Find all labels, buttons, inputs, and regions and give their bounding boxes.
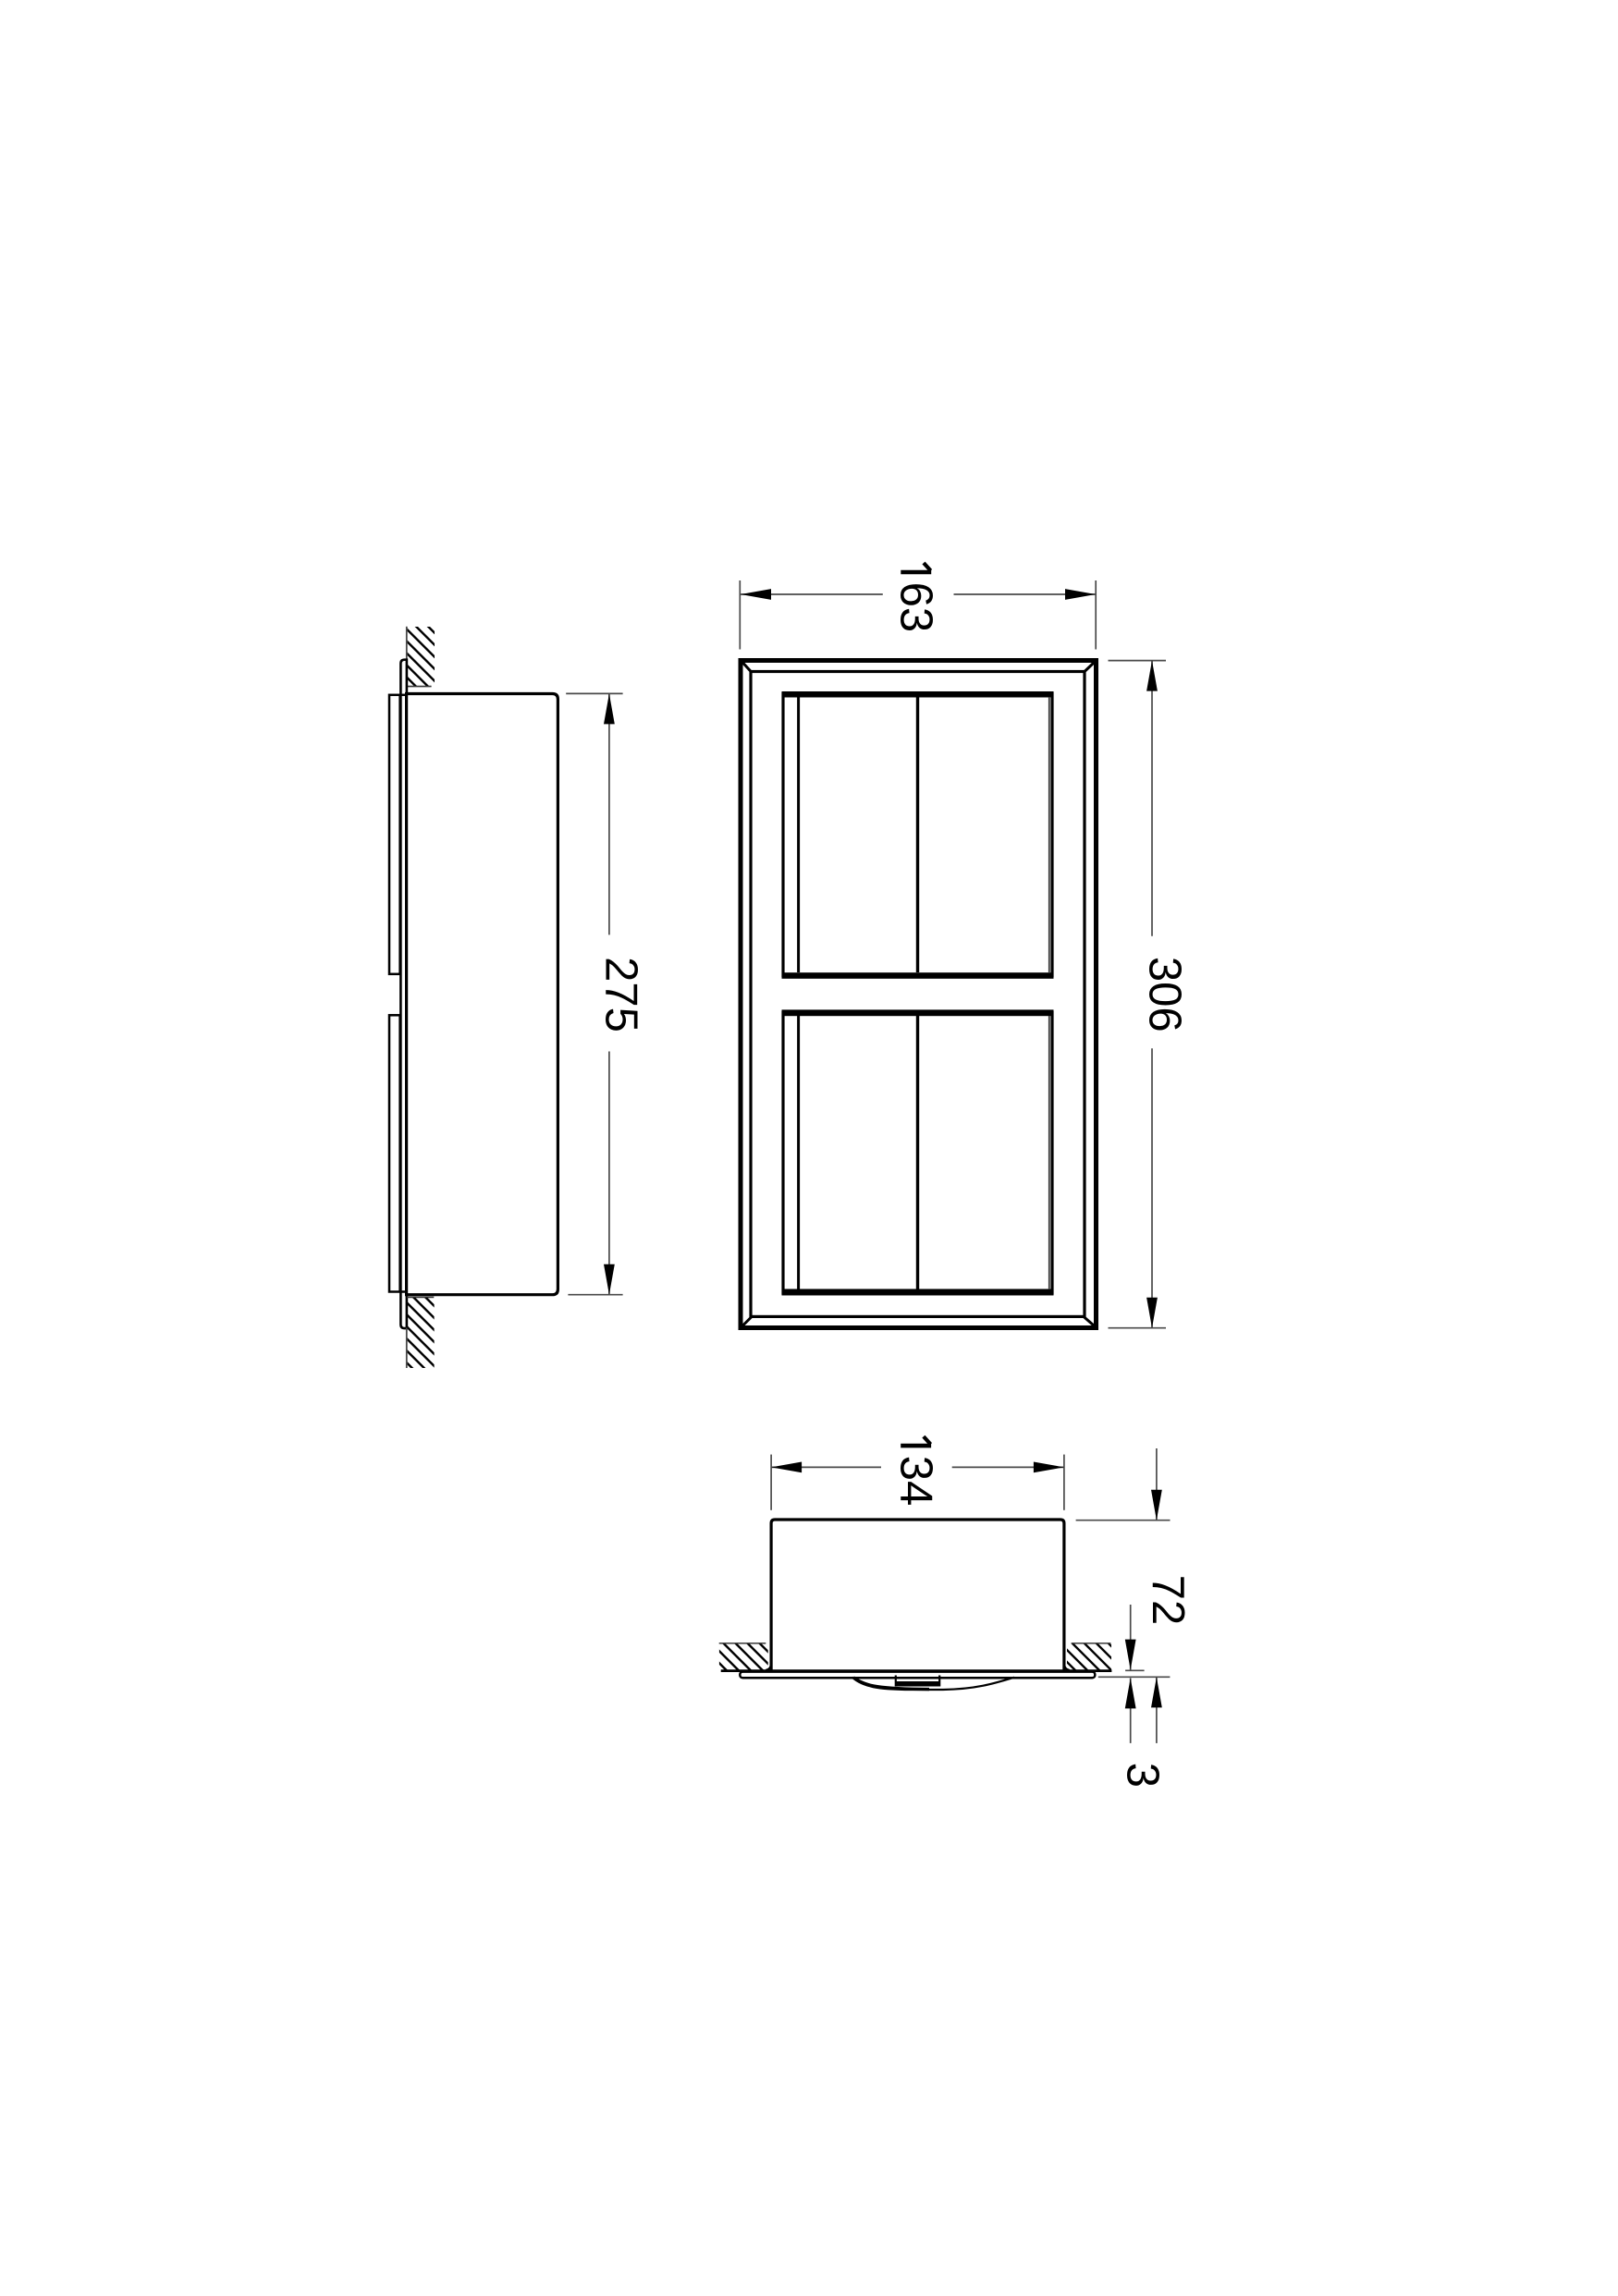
svg-text:72: 72 — [1143, 1575, 1193, 1626]
svg-text:3: 3 — [1118, 1763, 1168, 1788]
svg-text:63: 63 — [891, 582, 941, 633]
svg-text:306: 306 — [1140, 957, 1190, 1032]
svg-text:275: 275 — [596, 957, 646, 1032]
svg-text:34: 34 — [890, 1456, 940, 1507]
